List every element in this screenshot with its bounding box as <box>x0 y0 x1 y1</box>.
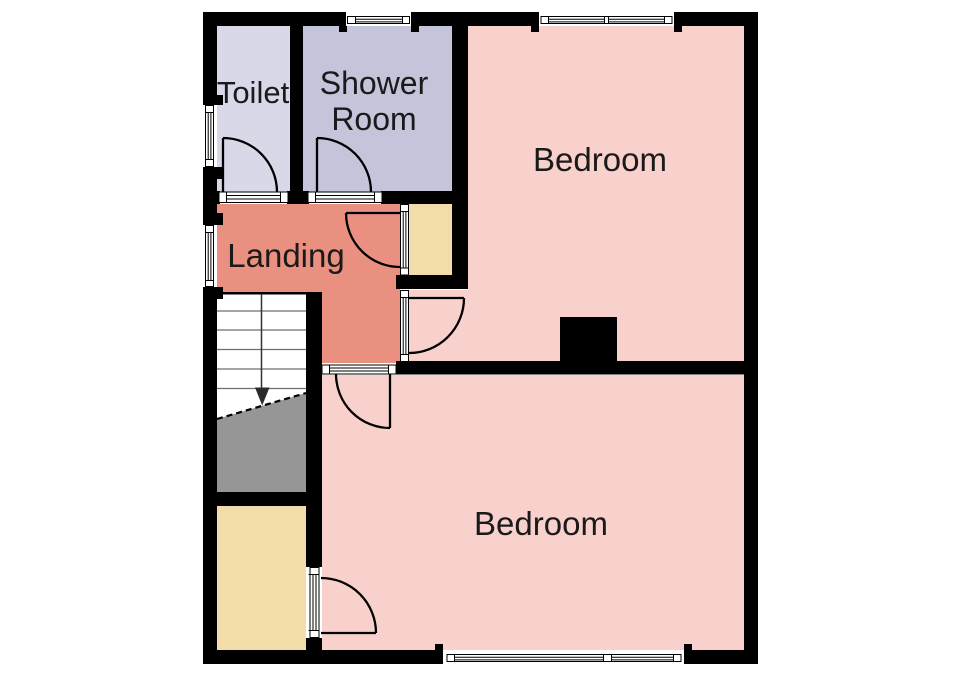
svg-text:Shower: Shower <box>320 65 429 101</box>
svg-text:Landing: Landing <box>227 237 344 274</box>
svg-text:Toilet: Toilet <box>217 75 290 110</box>
svg-text:Room: Room <box>331 101 416 137</box>
svg-text:Bedroom: Bedroom <box>474 505 608 542</box>
svg-text:Bedroom: Bedroom <box>533 141 667 178</box>
